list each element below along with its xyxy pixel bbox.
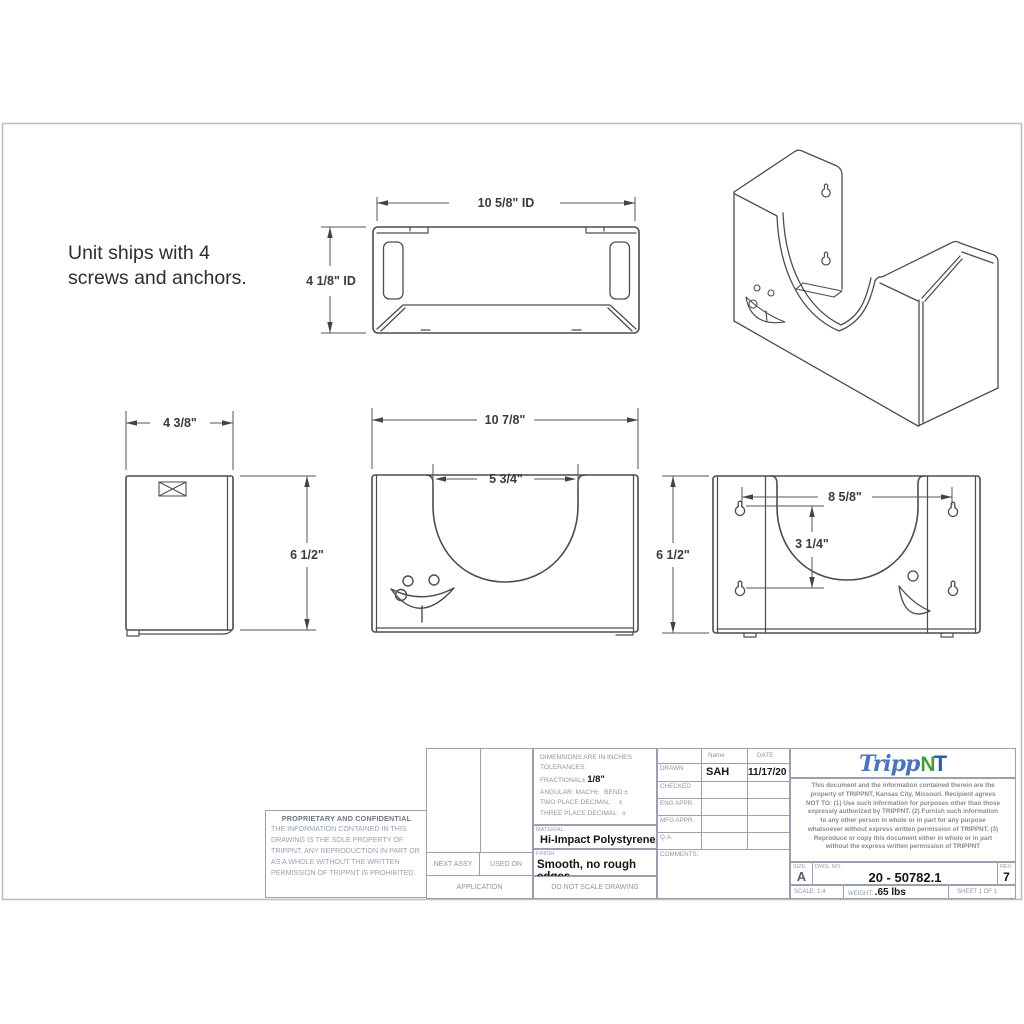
weight-value: .65 lbs [875, 887, 906, 898]
rev-cell: REV. 7 [997, 862, 1016, 885]
drawn-date: 11/17/20 [748, 767, 786, 778]
used-on-label: USED ON [490, 861, 522, 868]
dwg-no-label: DWG. NO. [815, 864, 842, 870]
title-block: NEXT ASSY USED ON APPLICATION DIMENSIONS… [426, 748, 1016, 899]
smiley-cutout-icon [746, 285, 785, 323]
approval-row-mfg: MFG APPR. [658, 815, 791, 833]
dim-height-right: 6 1/2" [656, 548, 690, 562]
used-on-cell: USED ON [479, 852, 533, 876]
finish-label: FINISH [536, 851, 554, 857]
tol-line1: DIMENSIONS ARE IN INCHES [540, 754, 632, 761]
next-assy-label: NEXT ASSY [434, 861, 473, 868]
row-label: Q.A. [658, 832, 673, 841]
material-cell: MATERIAL Hi-Impact Polystyrene [533, 825, 657, 849]
row-label: ENG APPR. [658, 798, 694, 807]
do-not-scale-label: DO NOT SCALE DRAWING [551, 884, 639, 891]
approval-table: Name DATE DRAWN SAH 11/17/20 CHECKED ENG… [657, 748, 790, 899]
approval-row-checked: CHECKED [658, 781, 791, 799]
size-cell: SIZE A [790, 862, 813, 885]
tol-fractional-value: 1/8" [587, 774, 605, 785]
logo-t-letter: T [934, 751, 947, 777]
drawn-name: SAH [706, 766, 729, 778]
comments-label: COMMENTS: [658, 849, 698, 858]
dim-keyhole-span: 8 5/8" [828, 490, 862, 504]
approval-header-row: Name DATE [658, 749, 791, 764]
application-column-divider [480, 748, 481, 852]
dim-top-depth: 4 1/8" ID [306, 274, 356, 288]
tol-line2: TOLERANCES: [540, 764, 586, 771]
row-label: DRAWN [658, 763, 684, 772]
top-view [373, 227, 639, 333]
scale-cell: SCALE: 1:4 [790, 885, 844, 899]
legal-text: This document and the information contai… [806, 782, 1000, 850]
do-not-scale-cell: DO NOT SCALE DRAWING [533, 876, 657, 899]
drawing-sheet: 10 5/8" ID 4 1/8" ID [0, 0, 1024, 1024]
application-label: APPLICATION [457, 884, 503, 891]
size-label: SIZE [793, 864, 805, 870]
weight-cell: WEIGHT: .65 lbs [843, 885, 949, 899]
tol-line6: THREE PLACE DECIMAL ± [540, 810, 626, 817]
tol-line5: TWO PLACE DECIMAL ± [540, 799, 623, 806]
front-view [372, 475, 638, 635]
approval-row-drawn: DRAWN SAH 11/17/20 [658, 763, 791, 782]
weight-label: WEIGHT: [844, 891, 875, 897]
dim-top-width: 10 5/8" ID [478, 196, 535, 210]
row-label: MFG APPR. [658, 815, 694, 824]
sheet-label: SHEET 1 OF 1 [949, 889, 997, 895]
date-header: DATE [757, 752, 773, 759]
proprietary-box: PROPRIETARY AND CONFIDENTIAL THE INFORMA… [265, 810, 428, 898]
legal-notice: This document and the information contai… [790, 778, 1016, 862]
tol-line3-label: FRACTIONAL± [540, 777, 587, 784]
proprietary-title: PROPRIETARY AND CONFIDENTIAL [270, 814, 423, 823]
approval-row-qa: Q.A. [658, 832, 791, 850]
isometric-view [734, 150, 998, 426]
approval-row-eng: ENG APPR. [658, 798, 791, 816]
side-view [126, 476, 233, 636]
next-assy-cell: NEXT ASSY [426, 852, 480, 876]
dwg-no-cell: DWG. NO. 20 - 50782.1 [812, 862, 998, 885]
finish-cell: FINISH Smooth, no rough edges [533, 849, 657, 876]
dim-keyhole-rise: 3 1/4" [795, 537, 829, 551]
keyhole-icon [822, 184, 830, 265]
tolerance-block: DIMENSIONS ARE IN INCHES TOLERANCES: FRA… [533, 748, 657, 825]
proprietary-body: THE INFORMATION CONTAINED IN THIS DRAWIN… [271, 824, 422, 879]
smiley-hidden-icon [899, 571, 930, 614]
comments-cell: COMMENTS: [658, 849, 791, 900]
sheet-cell: SHEET 1 OF 1 [948, 885, 1016, 899]
top-view-dimensions [321, 197, 635, 333]
smiley-cutout-icon [391, 575, 454, 622]
dim-height-left: 6 1/2" [290, 548, 324, 562]
rev-label: REV. [1000, 864, 1013, 870]
trippnt-logo: TrippNT [790, 748, 1016, 778]
logo-script-text: Tripp [859, 751, 919, 777]
label-patch-icon [159, 482, 186, 496]
shipping-note: Unit ships with 4 screws and anchors. [68, 241, 248, 291]
dim-side-width: 4 3/8" [163, 416, 197, 430]
tol-line4: ANGULAR: MACH± BEND ± [540, 789, 628, 796]
dim-front-width: 10 7/8" [485, 413, 526, 427]
application-cell: APPLICATION [426, 875, 533, 899]
material-label: MATERIAL [536, 827, 564, 833]
keyhole-icon [735, 501, 957, 595]
scale-label: SCALE: 1:4 [791, 889, 825, 895]
name-header: Name [708, 752, 725, 759]
dim-front-cutout: 5 3/4" [489, 472, 523, 486]
row-label: CHECKED [658, 781, 691, 790]
